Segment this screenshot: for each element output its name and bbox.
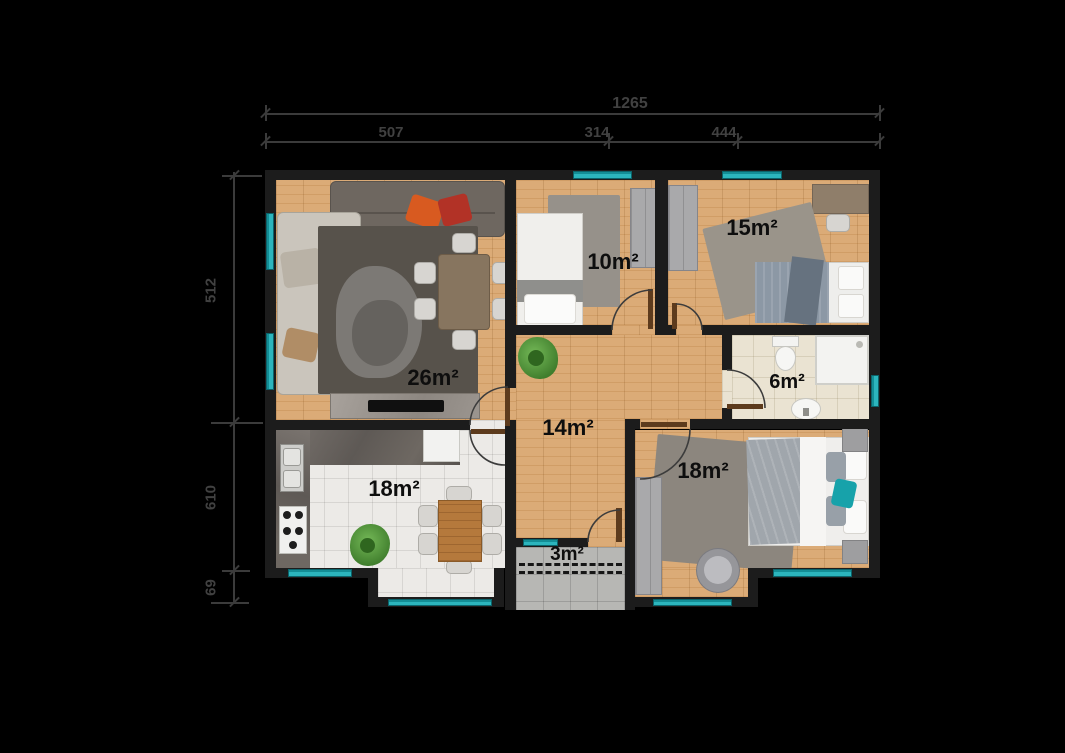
- dim-segment-444: 444: [694, 124, 754, 141]
- floor-plan-canvas: 26m² 10m² 15m² 6m² 14m² 18m² 3m² 18m² 12…: [0, 0, 1065, 753]
- dim-line-left: [233, 172, 235, 603]
- room-label-living: 26m²: [383, 365, 483, 391]
- dim-tick-bar: [211, 422, 263, 424]
- room-label-kitchen: 18m²: [344, 476, 444, 502]
- room-label-bedroom-10: 10m²: [563, 249, 663, 275]
- dim-line-total: [265, 113, 880, 115]
- dim-tick-bar: [222, 175, 262, 177]
- dim-total-width: 1265: [600, 95, 660, 113]
- dim-segment-314: 314: [567, 124, 627, 141]
- dim-segment-512: 512: [203, 271, 220, 311]
- room-label-bathroom: 6m²: [737, 371, 837, 394]
- room-label-hallway: 14m²: [518, 415, 618, 441]
- room-label-entry: 3m²: [517, 544, 617, 566]
- room-label-bedroom-15: 15m²: [702, 215, 802, 241]
- dim-line-segments: [265, 141, 880, 143]
- dim-tick-bar: [222, 570, 250, 572]
- dim-segment-69: 69: [203, 568, 220, 608]
- dim-segment-507: 507: [361, 124, 421, 141]
- room-label-bedroom-18: 18m²: [653, 458, 753, 484]
- dim-segment-610: 610: [203, 478, 220, 518]
